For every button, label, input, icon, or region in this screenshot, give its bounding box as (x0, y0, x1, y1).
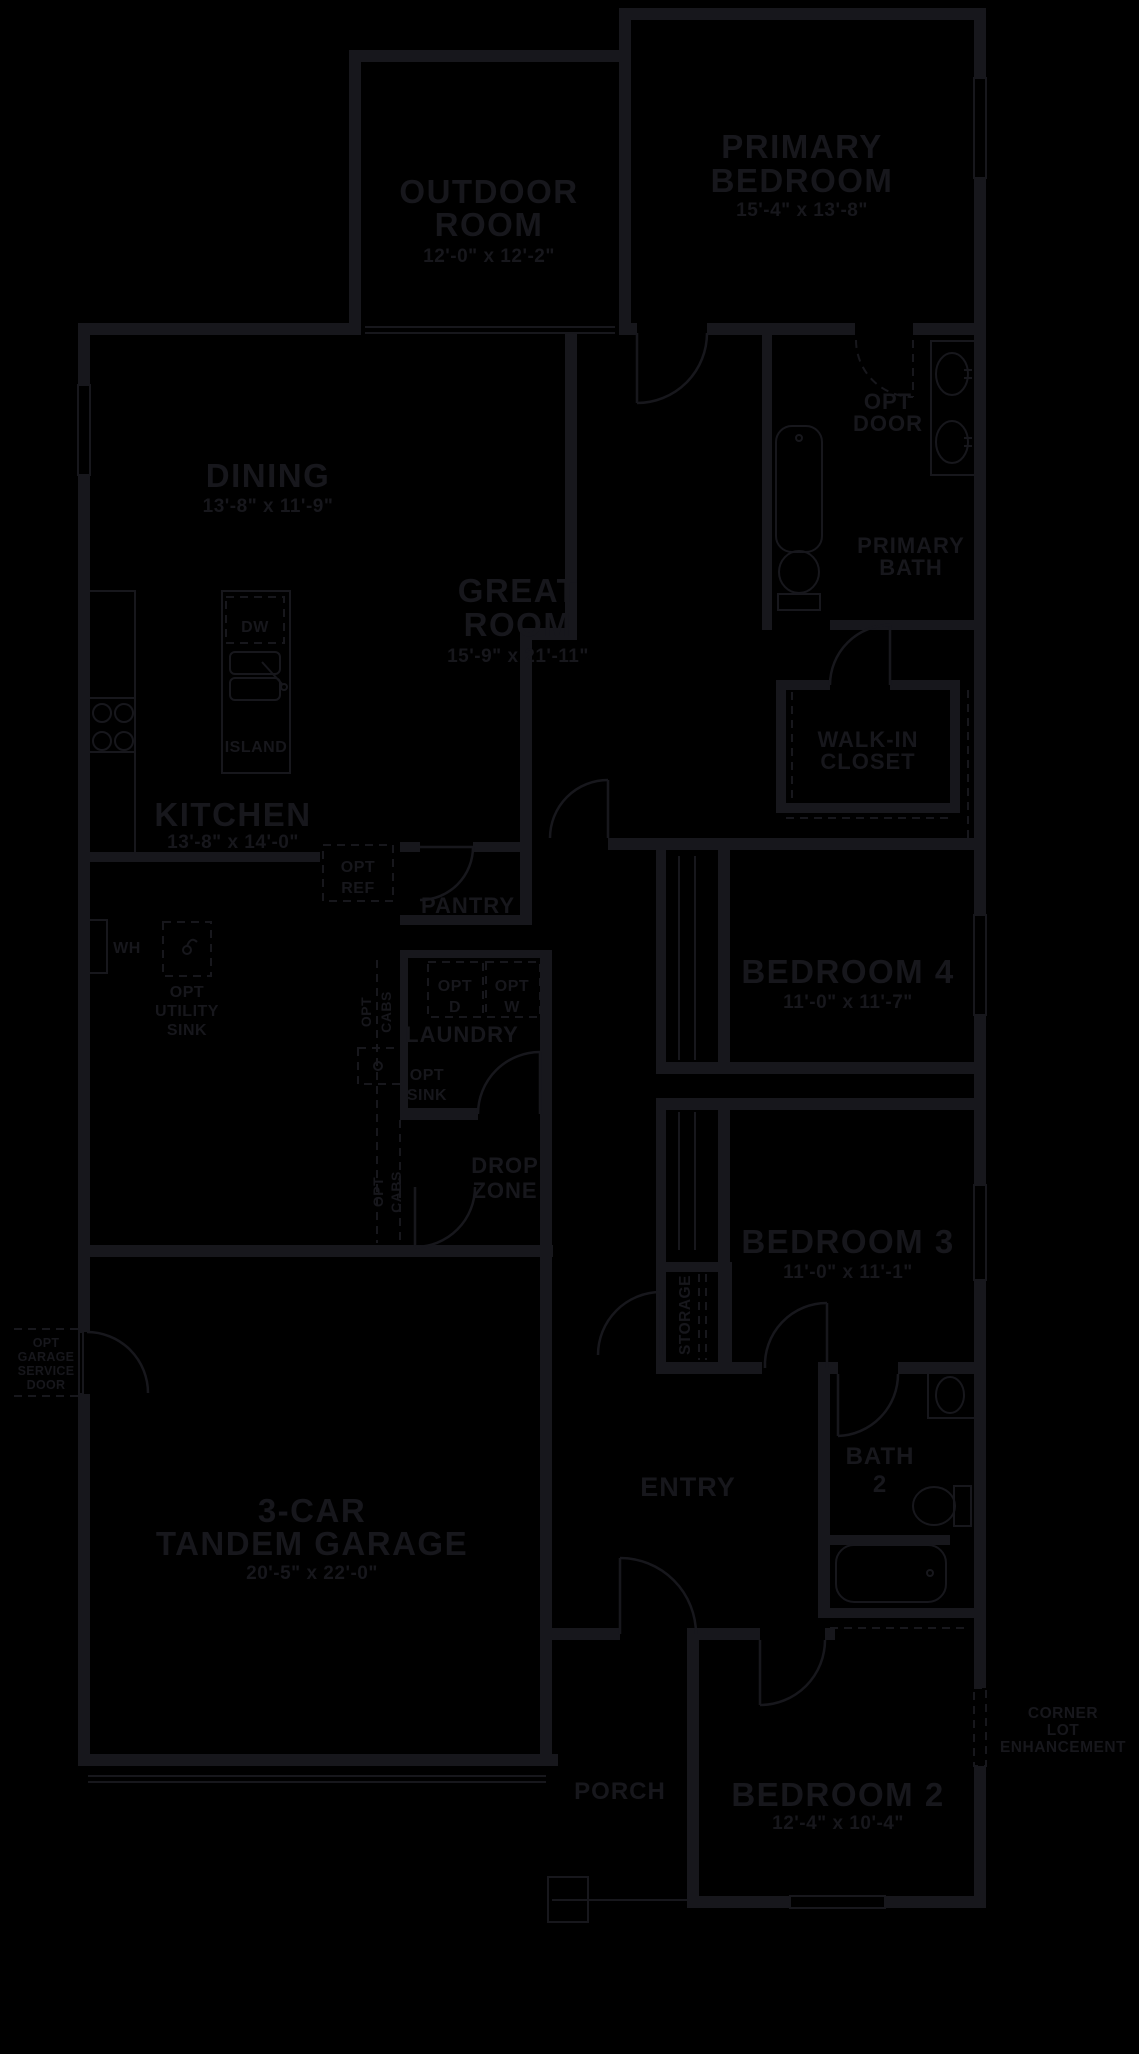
water-heater-label: WH (113, 940, 141, 957)
svg-text:ENHANCEMENT: ENHANCEMENT (1000, 1739, 1126, 1756)
opt-dryer-label: OPT (438, 978, 472, 995)
svg-text:BEDROOM: BEDROOM (711, 162, 894, 199)
primary-bedroom-label: PRIMARY (721, 128, 882, 165)
svg-text:CABS: CABS (388, 1171, 404, 1213)
island-label: ISLAND (225, 739, 288, 756)
bedroom4-label: BEDROOM 4 (741, 953, 954, 990)
primary-bedroom-dims: 15'-4" x 13'-8" (736, 200, 868, 221)
opt-utility-sink-label: OPT (170, 984, 204, 1001)
entry-label: ENTRY (640, 1472, 736, 1502)
laundry-label: LAUNDRY (405, 1022, 519, 1047)
window-bedroom3 (974, 1185, 986, 1280)
toilet-icon (778, 594, 820, 610)
bedroom4-dims: 11'-0" x 11'-7" (783, 992, 913, 1013)
bathtub-icon (836, 1545, 946, 1602)
window-bedroom4 (974, 915, 986, 1015)
svg-text:UTILITY: UTILITY (155, 1003, 219, 1020)
sink-icon (936, 421, 968, 463)
water-heater (88, 920, 107, 973)
faucet-icon (183, 946, 191, 954)
svg-text:BATH: BATH (879, 555, 942, 580)
svg-text:REF: REF (341, 880, 375, 897)
outdoor-room-label: OUTDOOR (399, 173, 578, 210)
toilet-icon (913, 1487, 955, 1525)
great-room-label: GREAT (458, 572, 579, 609)
pantry-label: PANTRY (421, 893, 515, 918)
storage-shelf (699, 1274, 706, 1360)
opt-garage-service-door-label: OPT (33, 1336, 60, 1350)
svg-text:CABS: CABS (378, 991, 394, 1033)
sink-icon (936, 1377, 964, 1413)
opt-cabs-label-dropzone: OPT (370, 1177, 386, 1207)
bath2-label: BATH (846, 1443, 915, 1470)
opt-sink-label: OPT (410, 1067, 444, 1084)
porch-label: PORCH (574, 1778, 666, 1805)
outdoor-room-dims: 12'-0" x 12'-2" (423, 246, 555, 267)
kitchen-sink-icon (230, 652, 280, 674)
svg-text:ROOM: ROOM (435, 206, 544, 243)
storage-label: STORAGE (677, 1275, 694, 1355)
sink-icon (936, 353, 968, 395)
dining-dims: 13'-8" x 11'-9" (203, 496, 334, 517)
floor-plan: OUTDOOR ROOM 12'-0" x 12'-2" PRIMARY BED… (0, 0, 1139, 2054)
floor-plan-drawing: OUTDOOR ROOM 12'-0" x 12'-2" PRIMARY BED… (0, 0, 1139, 2054)
window-dining (78, 385, 90, 475)
drop-zone-label: DROP (471, 1153, 539, 1178)
svg-text:SERVICE: SERVICE (18, 1364, 75, 1378)
window-corner-lot-optional (974, 1688, 986, 1766)
opt-ref-label: OPT (341, 859, 375, 876)
bathtub-icon (776, 426, 822, 552)
svg-text:2: 2 (873, 1471, 887, 1498)
svg-text:TANDEM GARAGE: TANDEM GARAGE (156, 1525, 468, 1562)
bedroom2-dims: 12'-4" x 10'-4" (772, 1813, 904, 1834)
svg-text:ZONE: ZONE (472, 1178, 537, 1203)
great-room-dims: 15'-9" x 21'-11" (447, 646, 589, 667)
svg-text:SINK: SINK (407, 1087, 447, 1104)
svg-text:DOOR: DOOR (853, 411, 923, 436)
garage-label: 3-CAR (258, 1492, 366, 1529)
bedroom3-label: BEDROOM 3 (741, 1223, 954, 1260)
opt-washer-label: OPT (495, 978, 529, 995)
dishwasher-label: DW (241, 619, 269, 636)
opt-utility-sink-box (163, 922, 211, 976)
svg-text:W: W (504, 999, 520, 1016)
garage-dims: 20'-5" x 22'-0" (246, 1563, 378, 1584)
window-bedroom2 (790, 1896, 885, 1908)
svg-text:LOT: LOT (1047, 1722, 1080, 1739)
bedroom2-label: BEDROOM 2 (731, 1776, 944, 1813)
svg-text:GARAGE: GARAGE (18, 1350, 75, 1364)
bedroom3-dims: 11'-0" x 11'-1" (783, 1262, 913, 1283)
dining-label: DINING (206, 457, 331, 494)
svg-text:D: D (449, 999, 461, 1016)
svg-text:SINK: SINK (167, 1022, 207, 1039)
opt-sink-box (358, 1048, 403, 1084)
garage-service-door (79, 1332, 83, 1394)
corner-lot-enhancement-label: CORNER (1028, 1705, 1098, 1722)
svg-text:CLOSET: CLOSET (820, 749, 915, 774)
double-vanity (931, 341, 976, 475)
kitchen-label: KITCHEN (154, 796, 311, 833)
svg-text:ROOM: ROOM (464, 606, 573, 643)
kitchen-dims: 13'-8" x 14'-0" (167, 832, 299, 853)
opt-cabs-label-laundry: OPT (358, 997, 374, 1027)
cooktop-icon (93, 704, 111, 722)
svg-text:DOOR: DOOR (27, 1378, 66, 1392)
window-primary-bedroom (974, 78, 986, 178)
